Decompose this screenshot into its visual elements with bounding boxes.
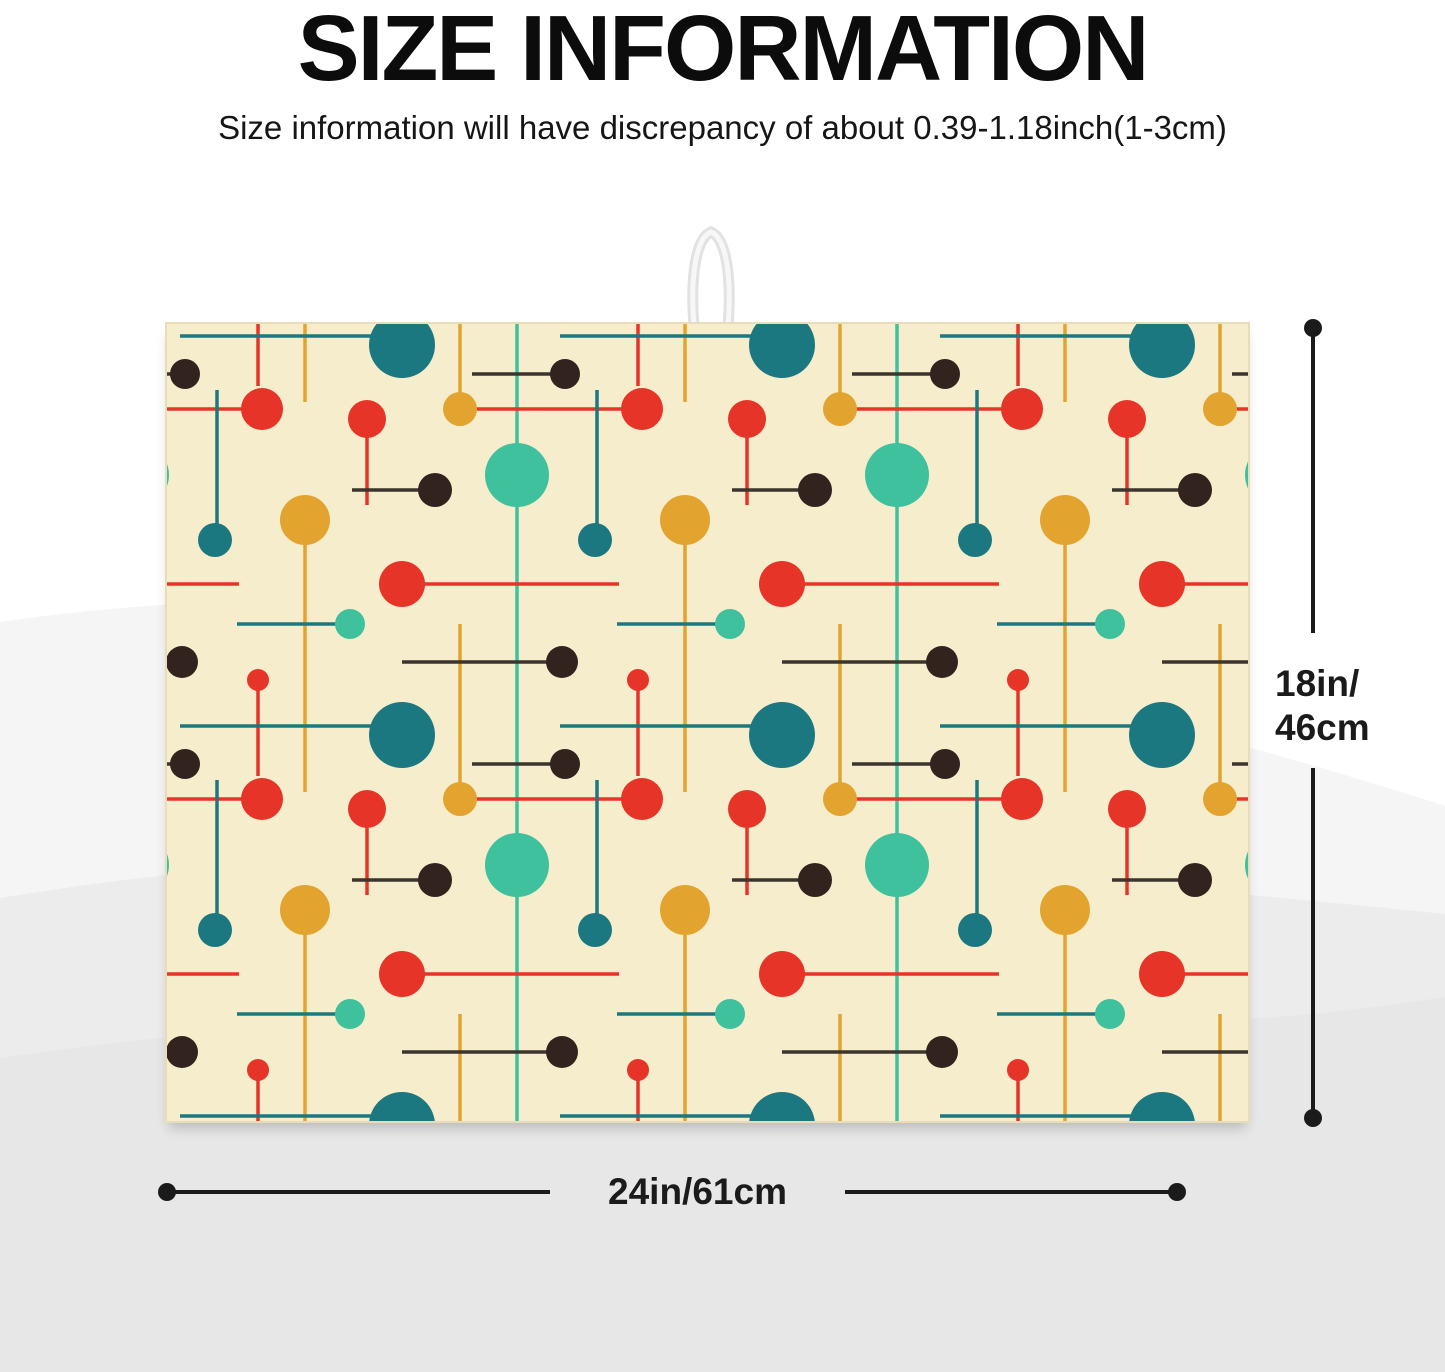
- page-title: SIZE INFORMATION: [0, 0, 1445, 95]
- height-dimension-line-top: [1311, 328, 1315, 633]
- pattern-dot-mint: [865, 443, 929, 507]
- pattern-dot-mustard: [1203, 782, 1237, 816]
- pattern-dot-red: [379, 561, 425, 607]
- pattern-dot-mustard: [1040, 495, 1090, 545]
- pattern-dot-mint: [715, 609, 745, 639]
- pattern-dot-dark: [546, 646, 578, 678]
- pattern-dot-dark: [798, 473, 832, 507]
- pattern-dot-red: [241, 388, 283, 430]
- pattern-dot-teal: [578, 913, 612, 947]
- width-dimension-right-dot: [1168, 1183, 1186, 1201]
- height-label-inches: 18in/: [1275, 662, 1370, 706]
- pattern-dot-red: [247, 1059, 269, 1081]
- pattern-dot-dark: [418, 473, 452, 507]
- pattern-dot-red: [1139, 951, 1185, 997]
- pattern-dot-mint: [485, 833, 549, 897]
- pattern-dot-dark: [167, 646, 198, 678]
- pattern-dot-red: [627, 1059, 649, 1081]
- pattern-dot-mustard: [823, 392, 857, 426]
- pattern-dot-red: [1007, 1059, 1029, 1081]
- width-dimension-line-right: [845, 1190, 1177, 1194]
- pattern-dot-red: [348, 400, 386, 438]
- pattern-dot-teal: [198, 913, 232, 947]
- height-dimension-label: 18in/ 46cm: [1275, 662, 1370, 750]
- pattern-dot-dark: [798, 863, 832, 897]
- pattern-dot-mint: [335, 999, 365, 1029]
- pattern-dot-dark: [170, 359, 200, 389]
- pattern-dot-dark: [926, 1036, 958, 1068]
- pattern-dot-mustard: [1040, 885, 1090, 935]
- width-dimension-line-left: [167, 1190, 550, 1194]
- height-label-cm: 46cm: [1275, 706, 1370, 750]
- width-dimension-label: 24in/61cm: [555, 1170, 840, 1214]
- pattern-dot-red: [627, 669, 649, 691]
- pattern-dot-dark: [930, 749, 960, 779]
- pattern-dot-teal: [369, 702, 435, 768]
- pattern-dot-teal: [578, 523, 612, 557]
- pattern-dot-mint: [335, 609, 365, 639]
- pattern-dot-mint: [1095, 999, 1125, 1029]
- pattern-dot-red: [1001, 778, 1043, 820]
- pattern-dot-mustard: [443, 782, 477, 816]
- pattern-dot-mustard: [823, 782, 857, 816]
- pattern-dot-dark: [418, 863, 452, 897]
- pattern-dot-dark: [930, 359, 960, 389]
- pattern-dot-dark: [1178, 863, 1212, 897]
- pattern-dot-red: [621, 778, 663, 820]
- pattern-dot-red: [1108, 790, 1146, 828]
- mat-background: [167, 324, 1248, 1121]
- page-subtitle: Size information will have discrepancy o…: [0, 109, 1445, 147]
- pattern-dot-teal: [958, 913, 992, 947]
- pattern-dot-teal: [749, 702, 815, 768]
- pattern-dot-red: [759, 951, 805, 997]
- pattern-dot-red: [1001, 388, 1043, 430]
- pattern-dot-dark: [1178, 473, 1212, 507]
- pattern-dot-red: [379, 951, 425, 997]
- pattern-dot-dark: [550, 749, 580, 779]
- height-dimension-bottom-dot: [1304, 1109, 1322, 1127]
- pattern-dot-red: [241, 778, 283, 820]
- product-mat-image: [165, 322, 1250, 1123]
- pattern-dot-dark: [167, 1036, 198, 1068]
- pattern-dot-teal: [958, 523, 992, 557]
- header: SIZE INFORMATION Size information will h…: [0, 0, 1445, 147]
- pattern-dot-dark: [170, 749, 200, 779]
- pattern-dot-teal: [198, 523, 232, 557]
- pattern-dot-mint: [715, 999, 745, 1029]
- pattern-dot-mustard: [443, 392, 477, 426]
- hanging-loop-icon: [678, 222, 744, 326]
- pattern-dot-mustard: [660, 885, 710, 935]
- pattern-dot-mustard: [660, 495, 710, 545]
- pattern-dot-red: [1108, 400, 1146, 438]
- pattern-dot-teal: [1129, 702, 1195, 768]
- pattern-dot-red: [728, 400, 766, 438]
- pattern-dot-dark: [550, 359, 580, 389]
- pattern-dot-red: [247, 669, 269, 691]
- pattern-dot-mustard: [1203, 392, 1237, 426]
- pattern-dot-red: [759, 561, 805, 607]
- pattern-dot-red: [728, 790, 766, 828]
- pattern-dot-red: [1139, 561, 1185, 607]
- pattern-dot-red: [348, 790, 386, 828]
- size-information-page: SIZE INFORMATION Size information will h…: [0, 0, 1445, 1372]
- pattern-dot-dark: [546, 1036, 578, 1068]
- pattern-dot-red: [1007, 669, 1029, 691]
- pattern-dot-mustard: [280, 885, 330, 935]
- pattern-dot-mint: [1095, 609, 1125, 639]
- pattern-dot-mint: [865, 833, 929, 897]
- pattern-dot-dark: [926, 646, 958, 678]
- pattern-dot-mustard: [280, 495, 330, 545]
- mat-pattern: [167, 324, 1248, 1121]
- pattern-dot-red: [621, 388, 663, 430]
- height-dimension-line-bottom: [1311, 768, 1315, 1118]
- pattern-dot-mint: [485, 443, 549, 507]
